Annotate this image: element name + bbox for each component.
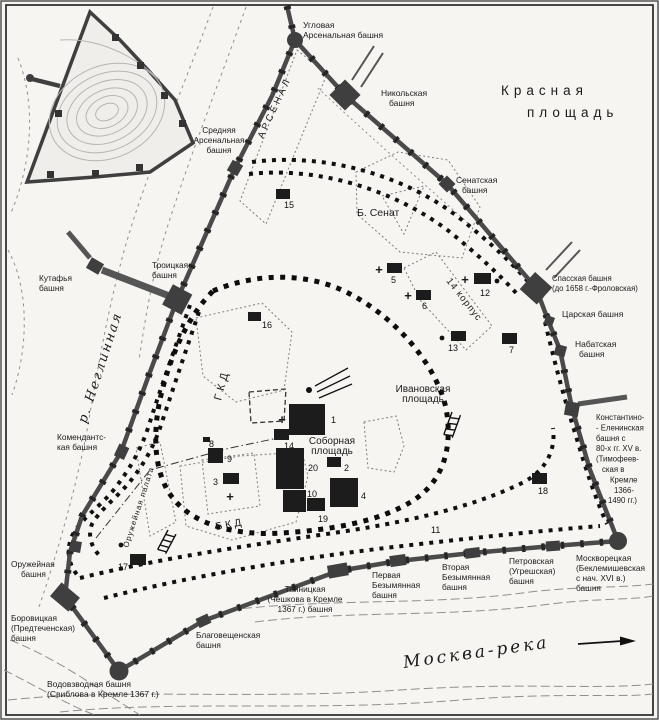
label-krasnaya-2: площадь [527, 105, 618, 120]
site-11-number: 11 [431, 525, 440, 535]
church-cross-icon: + [278, 412, 286, 427]
site-1-number: 1 [331, 415, 336, 425]
site-8-number: 8 [209, 439, 214, 449]
site-16-marker [248, 312, 261, 321]
site-12-number: 12 [480, 288, 490, 298]
church-cross-icon: + [226, 489, 234, 504]
site-17-number: 17 [118, 562, 128, 572]
site-9-number: 9 [227, 454, 232, 464]
site-20-marker [276, 448, 304, 489]
tower-uglovaya-arsenalnaya [287, 32, 303, 48]
site-18-number: 18 [538, 486, 548, 496]
label-tsarskaya: Царская башня [562, 309, 624, 319]
site-7-number: 7 [509, 345, 514, 355]
tower-vtoraya-bezymyannaya [464, 547, 480, 559]
kremlin-map: +12+34+5+67891011+121314151617181920 Угл… [0, 0, 659, 720]
tower-pervaya-bezymyannaya [389, 554, 406, 567]
site-6-marker [416, 290, 431, 300]
tower-moskvoretskaya [609, 532, 627, 550]
site-3-number: 3 [213, 477, 218, 487]
site-5-number: 5 [391, 275, 396, 285]
site-dot [440, 336, 445, 341]
site-10-number: 10 [307, 489, 317, 499]
site-7-marker [502, 333, 517, 344]
tower-konstantino-eleninskaya [564, 401, 580, 417]
site-6-number: 6 [422, 301, 427, 311]
church-cross-icon: + [461, 272, 469, 287]
site-13-marker [451, 331, 466, 341]
site-4-number: 4 [361, 491, 366, 501]
site-19-marker [307, 498, 325, 511]
church-cross-icon: + [375, 262, 383, 277]
site-4-marker [330, 478, 358, 507]
church-cross-icon: + [404, 288, 412, 303]
site-17-marker [130, 554, 146, 565]
label-b-senat: Б. Сенат [357, 207, 400, 219]
site-18-marker [532, 473, 547, 484]
site-12-marker [474, 273, 491, 284]
site-3-marker [223, 473, 239, 484]
site-14-marker [274, 429, 289, 440]
site-15-marker [276, 189, 290, 199]
site-16-number: 16 [262, 320, 272, 330]
tower-petrovskaya [546, 541, 561, 552]
label-sobornaya-ploshchad: Соборнаяплощадь [309, 435, 355, 457]
tower-vodovzvodnaya [110, 662, 129, 681]
site-19-number: 19 [318, 514, 328, 524]
site-9-marker [208, 448, 223, 463]
site-10-marker [283, 490, 306, 512]
site-5-marker [387, 263, 402, 273]
site-dot [495, 279, 500, 284]
flagpole-dot [306, 387, 312, 393]
site-2-number: 2 [344, 463, 349, 473]
label-krasnaya-1: Красная [501, 83, 588, 98]
site-15-number: 15 [284, 200, 294, 210]
tower-oruzheinaya [69, 540, 82, 553]
site-11: 11 [431, 525, 440, 535]
map-canvas: +12+34+5+67891011+121314151617181920 Угл… [0, 0, 659, 720]
label-ivanovskaya-ploshchad: Ивановскаяплощадь [396, 384, 451, 405]
site-2-marker [327, 457, 341, 467]
site-20-number: 20 [308, 463, 318, 473]
site-13-number: 13 [448, 343, 458, 353]
site-1-marker [289, 404, 325, 435]
